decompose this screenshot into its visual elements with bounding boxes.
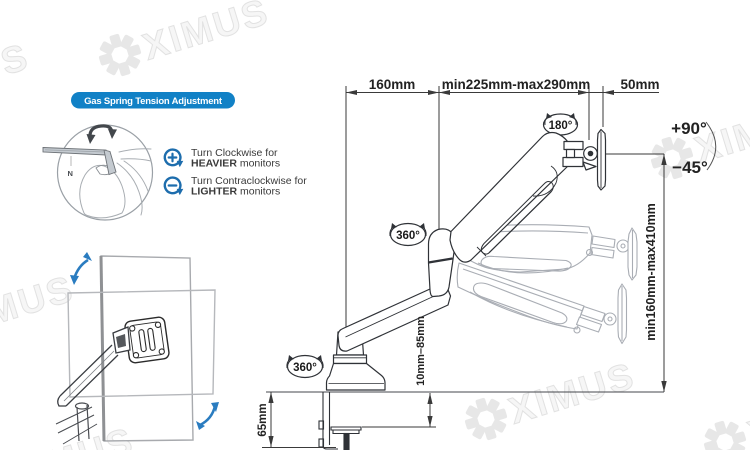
svg-text:+90°: +90° (671, 119, 707, 138)
svg-text:50mm: 50mm (620, 77, 659, 92)
svg-text:360°: 360° (396, 230, 420, 242)
svg-text:180°: 180° (549, 120, 573, 132)
svg-text:HEAVIER monitors: HEAVIER monitors (191, 158, 280, 170)
svg-text:360°: 360° (293, 362, 317, 374)
svg-text:min225mm-max290mm: min225mm-max290mm (442, 77, 591, 92)
svg-text:10mm–85mm: 10mm–85mm (415, 316, 427, 386)
svg-text:160mm: 160mm (369, 77, 416, 92)
svg-text:65mm: 65mm (257, 403, 269, 436)
svg-text:Gas Spring Tension Adjustment: Gas Spring Tension Adjustment (84, 96, 223, 107)
svg-text:N: N (68, 169, 73, 178)
svg-text:LIGHTER monitors: LIGHTER monitors (191, 186, 280, 198)
svg-text:−45°: −45° (672, 158, 708, 177)
svg-text:min160mm-max410mm: min160mm-max410mm (644, 203, 658, 341)
